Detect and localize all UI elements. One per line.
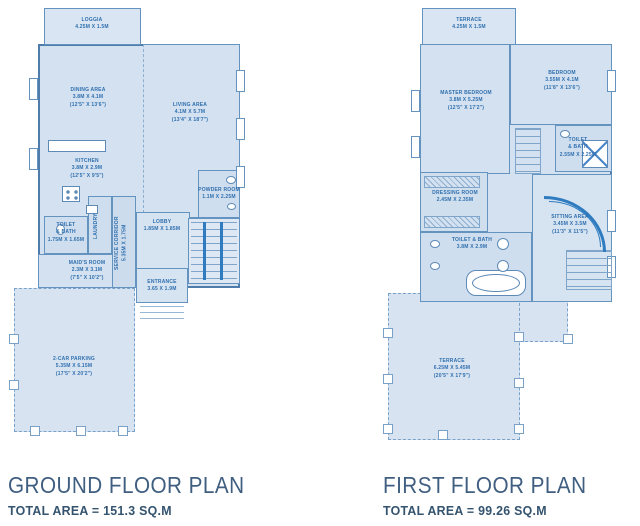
label-powder-room: POWDER ROOM 1.1M X 2.25M — [184, 187, 254, 202]
floor-plan-page: { "colors": { "room_fill": "#d3e1f0", "w… — [0, 0, 640, 526]
room-dims: 3.8M X 2.9M — [427, 244, 517, 251]
pillar — [30, 426, 40, 436]
room-name: SITTING AREA — [525, 214, 615, 221]
washbasin-icon — [497, 260, 509, 272]
label-parking: 2-CAR PARKING 5.35M X 6.15M (17'5" X 20'… — [29, 356, 119, 378]
room-name: LIVING AREA — [145, 102, 235, 109]
window-bay — [607, 70, 616, 92]
room-dims: 2.55M X 2.25M — [548, 152, 608, 159]
pillar — [438, 430, 448, 440]
pillar — [383, 328, 393, 338]
pillar — [514, 378, 524, 388]
room-dims-imperial: (12'5" X 13'6") — [43, 102, 133, 109]
room-name: POWDER ROOM — [184, 187, 254, 194]
room-dims: 3.8M X 2.9M — [42, 165, 132, 172]
room-name: TERRACE — [424, 17, 514, 24]
window-bay — [29, 78, 38, 100]
pillar — [9, 380, 19, 390]
entrance-step — [140, 318, 184, 319]
room-name: LOBBY — [117, 219, 207, 226]
stair-rail — [220, 222, 223, 280]
room-dims-imperial: (12'5" X 17'2") — [421, 105, 511, 112]
room-dims: 3.65 X 1.9M — [117, 286, 207, 293]
label-terrace-large: TERRACE 6.25M X 5.45M (20'5" X 17'9") — [407, 358, 497, 380]
first-stair-flight — [566, 250, 612, 290]
room-dims: 1.1M X 2.25M — [184, 194, 254, 201]
pillar — [9, 334, 19, 344]
toilet-icon — [226, 176, 236, 184]
room-dims: 3.8M X 4.1M — [43, 94, 133, 101]
label-entrance: ENTRANCE 3.65 X 1.9M — [117, 279, 207, 294]
wardrobe-hatch — [424, 176, 480, 188]
room-dims: 2.45M X 2.35M — [410, 197, 500, 204]
label-bedroom: BEDROOM 3.55M X 4.1M (11'8" X 13'6") — [517, 70, 607, 92]
room-name: TERRACE — [407, 358, 497, 365]
kitchen-counter — [48, 140, 106, 152]
label-toilet-bath-master: TOILET & BATH 3.8M X 2.9M — [427, 237, 517, 252]
label-toilet-bath-first: TOILET & BATH 2.55M X 2.25M — [548, 137, 608, 159]
label-loggia: LOGGIA 4.25M X 1.5M — [47, 17, 137, 32]
room-name: TOILET & BATH — [427, 237, 517, 244]
label-master-bedroom: MASTER BEDROOM 3.8M X 5.25M (12'5" X 17'… — [421, 90, 511, 112]
label-dressing: DRESSING ROOM 2.45M X 2.35M — [410, 190, 500, 205]
room-name: TOILET — [38, 222, 94, 229]
pillar — [514, 332, 524, 342]
room-dims: 3.45M X 3.5M — [525, 221, 615, 228]
toilet-icon — [430, 262, 440, 270]
label-terrace-top: TERRACE 4.25M X 1.5M — [424, 17, 514, 32]
pillar — [563, 334, 573, 344]
window-bay — [411, 90, 420, 112]
label-sitting-area: SITTING AREA 3.45M X 3.5M (11'3" X 11'5"… — [525, 214, 615, 236]
room-name: DRESSING ROOM — [410, 190, 500, 197]
room-name: BEDROOM — [517, 70, 607, 77]
room-name: DINING AREA — [43, 87, 133, 94]
room-name: MASTER BEDROOM — [421, 90, 511, 97]
room-dims: 2.3M X 3.1M — [42, 267, 132, 274]
room-dims: 4.1M X 5.7M — [145, 109, 235, 116]
pillar — [514, 424, 524, 434]
room-dims: 5.35M X 6.15M — [29, 363, 119, 370]
bathtub-inner — [472, 274, 520, 292]
window-bay — [411, 136, 420, 158]
room-dims-imperial: (11'3" X 11'5") — [525, 229, 615, 236]
window-bay — [236, 118, 245, 140]
room-name: & BATH — [548, 144, 608, 151]
room-dims-imperial: (12'5" X 9'5") — [42, 173, 132, 180]
pillar — [118, 426, 128, 436]
label-kitchen: KITCHEN 3.8M X 2.9M (12'5" X 9'5") — [42, 158, 132, 180]
label-living: LIVING AREA 4.1M X 5.7M (13'4" X 18'7") — [145, 102, 235, 124]
label-laundry: LAUNDRY — [93, 200, 100, 252]
room-dims: 1.85M X 1.85M — [117, 226, 207, 233]
pillar — [76, 426, 86, 436]
entrance-step — [140, 306, 184, 307]
ground-floor-total-area: TOTAL AREA = 151.3 SQ.M — [8, 503, 172, 518]
room-name: ENTRANCE — [117, 279, 207, 286]
label-toilet-bath-ground: TOILET & BATH 1.75M X 1.65M — [38, 222, 94, 244]
room-name: LAUNDRY — [93, 200, 100, 252]
first-floor-title: FIRST FLOOR PLAN — [383, 472, 587, 499]
room-dims: 6.25M X 5.45M — [407, 365, 497, 372]
room-dims: 1.75M X 1.65M — [38, 237, 94, 244]
room-dims-imperial: (11'8" X 13'6") — [517, 85, 607, 92]
pillar — [383, 374, 393, 384]
room-dims-imperial: (20'5" X 17'9") — [407, 373, 497, 380]
label-lobby: LOBBY 1.85M X 1.85M — [117, 219, 207, 234]
first-floor-total-area: TOTAL AREA = 99.26 SQ.M — [383, 503, 547, 518]
first-stair-flight — [515, 128, 541, 174]
room-name: MAID'S ROOM — [42, 260, 132, 267]
room-name: KITCHEN — [42, 158, 132, 165]
room-dims: 4.25M X 1.5M — [424, 24, 514, 31]
wardrobe-hatch — [424, 216, 480, 228]
label-dining: DINING AREA 3.8M X 4.1M (12'5" X 13'6") — [43, 87, 133, 109]
room-name: LOGGIA — [47, 17, 137, 24]
room-name: 2-CAR PARKING — [29, 356, 119, 363]
entrance-step — [140, 312, 184, 313]
room-dims: 3.8M X 5.25M — [421, 97, 511, 104]
window-bay — [236, 166, 245, 188]
room-name: & BATH — [38, 229, 94, 236]
stove-icon — [62, 186, 80, 202]
room-dims-imperial: (13'4" X 18'7") — [145, 117, 235, 124]
window-bay — [29, 148, 38, 170]
window-bay — [236, 70, 245, 92]
ground-floor-title: GROUND FLOOR PLAN — [8, 472, 245, 499]
room-dims: 4.25M X 1.5M — [47, 24, 137, 31]
pillar — [383, 424, 393, 434]
room-dims-imperial: (17'5" X 20'2") — [29, 371, 119, 378]
washbasin-icon — [227, 203, 236, 210]
room-name: TOILET — [548, 137, 608, 144]
room-dims: 3.55M X 4.1M — [517, 77, 607, 84]
